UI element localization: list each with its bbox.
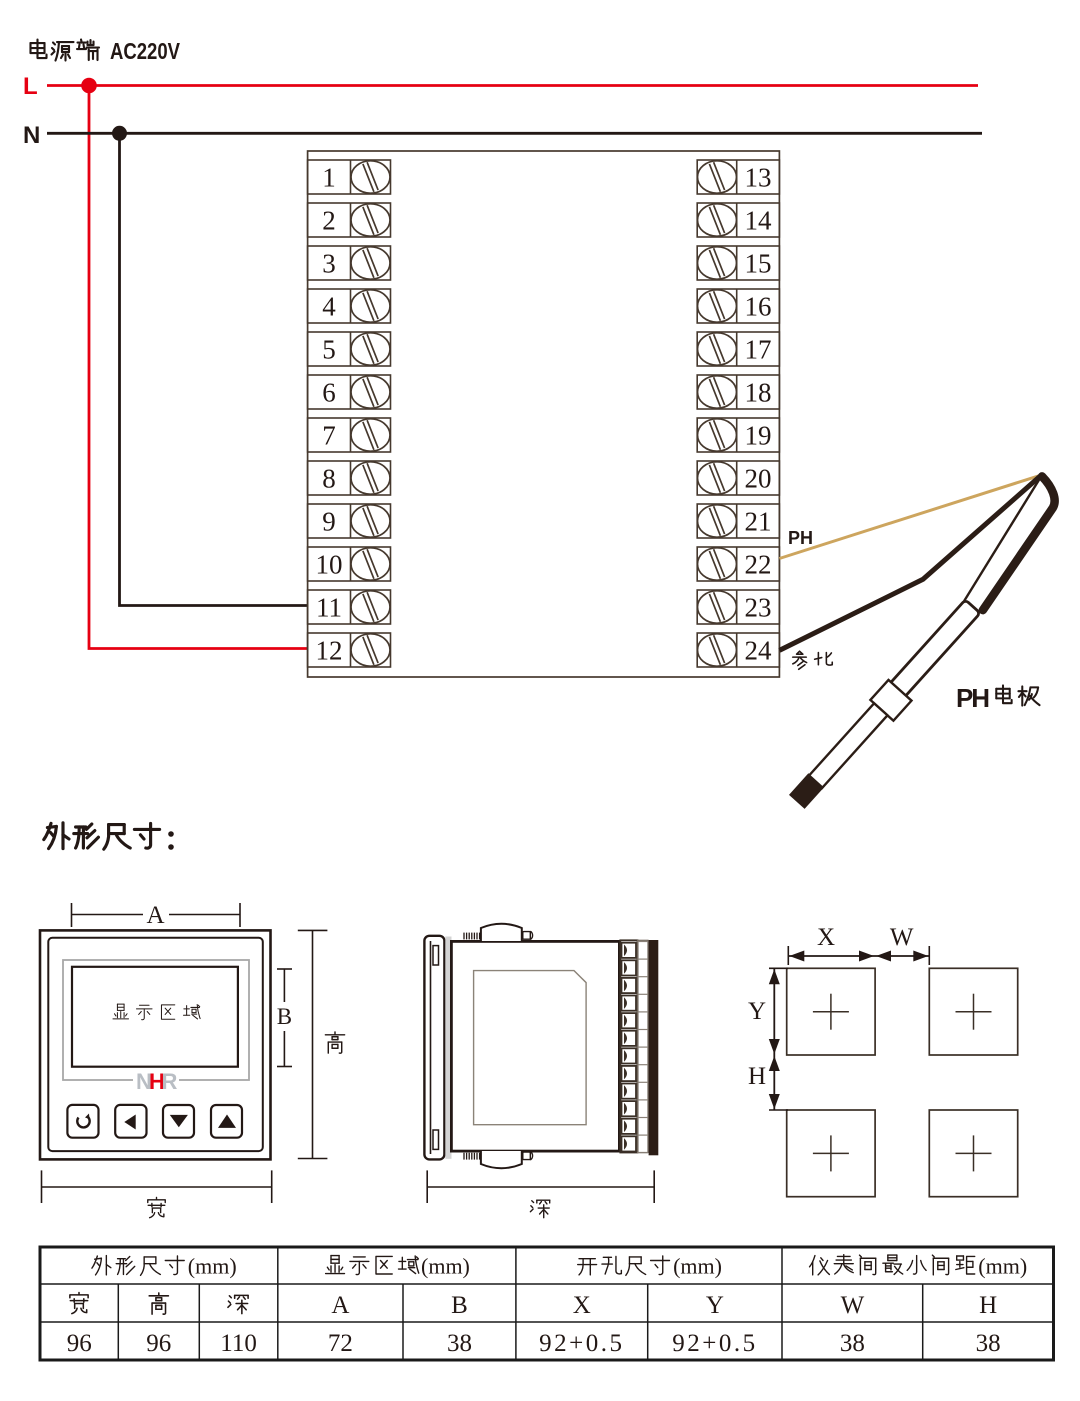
- svg-text:AC220V: AC220V: [110, 38, 181, 64]
- svg-text:X: X: [573, 1292, 591, 1319]
- svg-text:B: B: [451, 1292, 468, 1319]
- svg-text:W: W: [890, 924, 914, 951]
- svg-text:1: 1: [322, 163, 336, 193]
- svg-text:R: R: [162, 1069, 178, 1094]
- svg-text:15: 15: [745, 249, 772, 279]
- svg-text:11: 11: [316, 593, 342, 623]
- svg-text:92+0.5: 92+0.5: [539, 1330, 624, 1357]
- svg-text:4: 4: [322, 292, 336, 322]
- svg-text:38: 38: [840, 1330, 865, 1357]
- svg-text:22: 22: [745, 550, 772, 580]
- svg-text:6: 6: [322, 378, 336, 408]
- svg-text:X: X: [817, 924, 835, 951]
- svg-text:H: H: [979, 1292, 997, 1319]
- svg-text:7: 7: [322, 421, 336, 451]
- svg-text:96: 96: [67, 1330, 92, 1357]
- svg-text:5: 5: [322, 335, 336, 365]
- svg-text:16: 16: [745, 292, 772, 322]
- svg-text:20: 20: [745, 464, 772, 494]
- svg-text:PH: PH: [956, 683, 990, 713]
- svg-text:3: 3: [322, 249, 336, 279]
- svg-text:(mm): (mm): [188, 1254, 237, 1279]
- svg-text:23: 23: [745, 593, 772, 623]
- svg-text:18: 18: [745, 378, 772, 408]
- svg-text:A: A: [331, 1292, 349, 1319]
- svg-text:96: 96: [146, 1330, 171, 1357]
- svg-text:38: 38: [976, 1330, 1001, 1357]
- svg-text:N: N: [23, 122, 40, 149]
- svg-text:92+0.5: 92+0.5: [672, 1330, 757, 1357]
- svg-text:13: 13: [745, 163, 772, 193]
- svg-text:(mm): (mm): [421, 1254, 470, 1279]
- svg-text:H: H: [748, 1063, 766, 1090]
- svg-text:21: 21: [745, 507, 772, 537]
- svg-text:9: 9: [322, 507, 336, 537]
- svg-text:(mm): (mm): [978, 1254, 1027, 1279]
- svg-text:B: B: [277, 1004, 292, 1029]
- svg-text:24: 24: [745, 636, 773, 666]
- svg-text:72: 72: [328, 1330, 353, 1357]
- svg-text:10: 10: [316, 550, 343, 580]
- svg-text:8: 8: [322, 464, 336, 494]
- svg-text:19: 19: [745, 421, 772, 451]
- svg-text:Y: Y: [748, 998, 766, 1025]
- svg-text:38: 38: [447, 1330, 472, 1357]
- svg-text:2: 2: [322, 206, 336, 236]
- svg-text:W: W: [841, 1292, 865, 1319]
- svg-text:L: L: [23, 73, 38, 100]
- svg-text:Y: Y: [706, 1292, 724, 1319]
- svg-text:12: 12: [316, 636, 343, 666]
- svg-text:A: A: [146, 902, 164, 929]
- svg-text:17: 17: [745, 335, 772, 365]
- svg-text:PH: PH: [788, 528, 813, 548]
- svg-text:110: 110: [220, 1330, 257, 1357]
- svg-text:(mm): (mm): [673, 1254, 722, 1279]
- svg-text:14: 14: [745, 206, 773, 236]
